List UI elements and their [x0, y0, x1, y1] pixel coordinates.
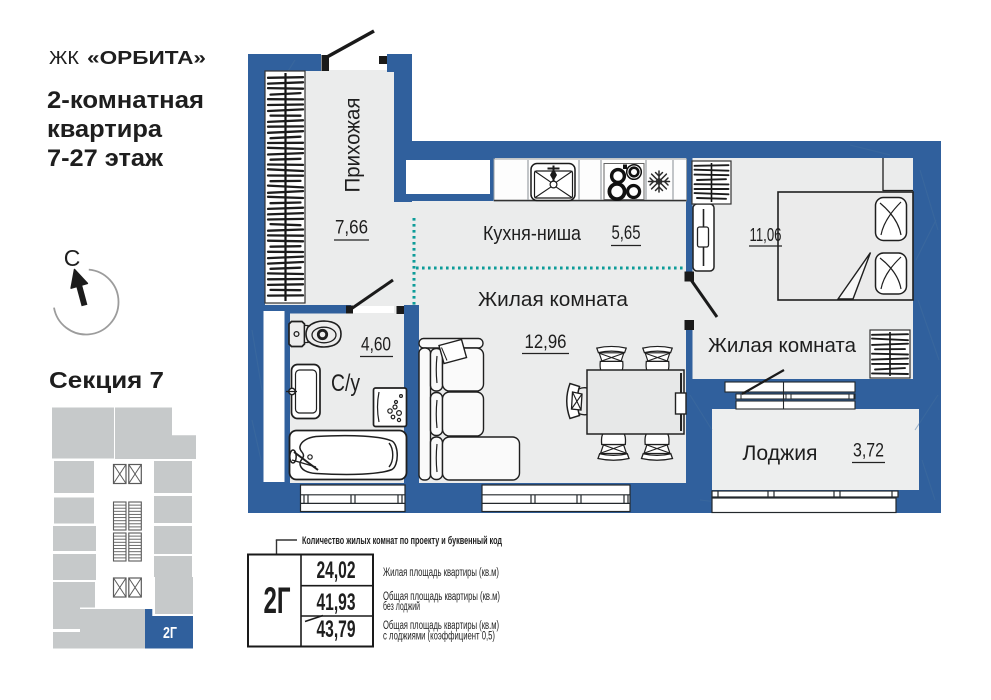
svg-text:«ОРБИТА»: «ОРБИТА» [87, 48, 206, 68]
svg-text:Жилая комната: Жилая комната [478, 288, 629, 311]
svg-text:Жилая комната: Жилая комната [708, 334, 857, 357]
svg-text:Лоджия: Лоджия [743, 442, 818, 465]
svg-text:4,60: 4,60 [361, 335, 391, 356]
svg-text:без лоджий: без лоджий [383, 601, 420, 613]
svg-text:Секция 7: Секция 7 [49, 367, 164, 393]
svg-text:12,96: 12,96 [525, 332, 567, 353]
svg-text:Жилая площадь квартиры (кв.м): Жилая площадь квартиры (кв.м) [383, 567, 499, 579]
svg-text:2-комнатная: 2-комнатная [47, 87, 204, 114]
svg-text:с лоджиями (коэффициент 0,5): с лоджиями (коэффициент 0,5) [383, 631, 495, 643]
svg-text:7-27 этаж: 7-27 этаж [47, 145, 164, 172]
svg-text:Прихожая: Прихожая [341, 98, 365, 193]
svg-text:Кухня-ниша: Кухня-ниша [483, 222, 582, 245]
svg-text:41,93: 41,93 [317, 589, 356, 616]
svg-text:С/у: С/у [331, 370, 360, 397]
svg-text:2Г: 2Г [264, 580, 291, 621]
svg-text:2Г: 2Г [163, 625, 177, 642]
svg-text:43,79: 43,79 [317, 616, 356, 643]
svg-text:С: С [64, 245, 81, 271]
svg-text:7,66: 7,66 [335, 218, 368, 239]
svg-text:24,02: 24,02 [317, 557, 356, 584]
svg-text:Количество жилых комнат по про: Количество жилых комнат по проекту и бук… [302, 535, 502, 547]
svg-text:11,06: 11,06 [750, 224, 782, 245]
svg-text:ЖК: ЖК [49, 48, 80, 68]
svg-text:квартира: квартира [47, 116, 163, 143]
svg-text:3,72: 3,72 [853, 441, 884, 462]
svg-text:5,65: 5,65 [612, 223, 641, 244]
